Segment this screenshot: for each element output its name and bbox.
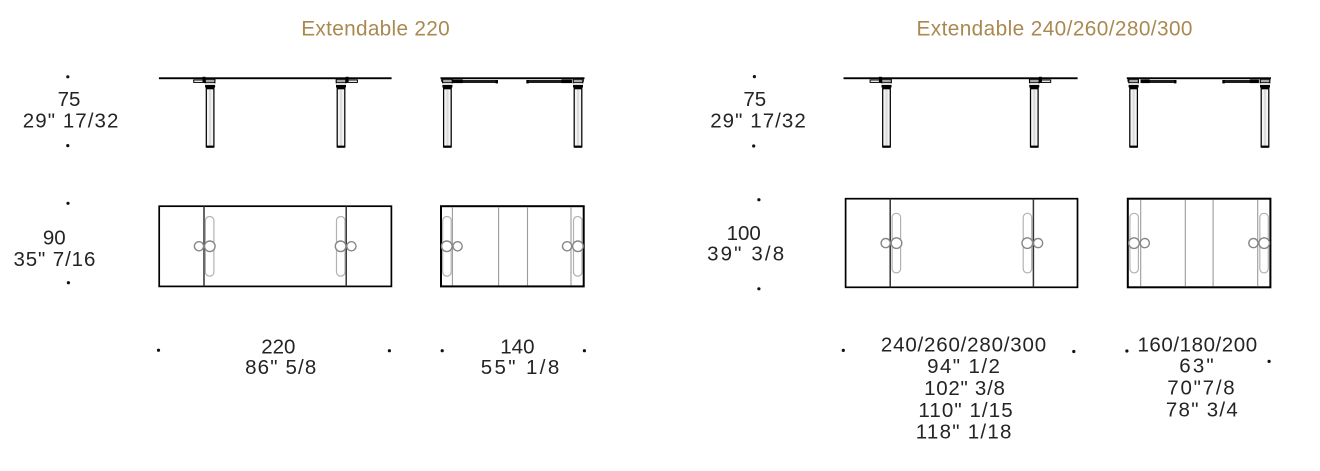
svg-text:Extendable 240/260/280/300: Extendable 240/260/280/300 <box>917 18 1193 41</box>
svg-text:78" 3/4: 78" 3/4 <box>1166 399 1238 422</box>
svg-text:63": 63" <box>1179 355 1213 378</box>
svg-text:220: 220 <box>261 335 295 358</box>
svg-text:110" 1/15: 110" 1/15 <box>918 399 1012 422</box>
svg-text:100: 100 <box>727 222 761 245</box>
svg-text:240/260/280/300: 240/260/280/300 <box>881 334 1046 357</box>
svg-text:160/180/200: 160/180/200 <box>1137 334 1257 357</box>
svg-text:140: 140 <box>500 335 534 358</box>
svg-text:Extendable 220: Extendable 220 <box>301 18 450 41</box>
svg-text:90: 90 <box>43 227 66 250</box>
svg-text:70"7/8: 70"7/8 <box>1167 377 1234 400</box>
svg-text:29" 17/32: 29" 17/32 <box>23 110 119 133</box>
svg-text:39" 3/8: 39" 3/8 <box>707 243 784 266</box>
svg-text:35" 7/16: 35" 7/16 <box>13 248 95 271</box>
svg-text:86" 5/8: 86" 5/8 <box>245 356 316 379</box>
svg-text:118" 1/18: 118" 1/18 <box>916 420 1012 443</box>
svg-text:102" 3/8: 102" 3/8 <box>924 377 1005 400</box>
svg-text:75: 75 <box>58 88 81 111</box>
svg-text:55" 1/8: 55" 1/8 <box>481 356 560 379</box>
svg-text:94" 1/2: 94" 1/2 <box>927 355 1000 378</box>
svg-text:75: 75 <box>743 88 766 111</box>
svg-text:29" 17/32: 29" 17/32 <box>710 110 806 133</box>
